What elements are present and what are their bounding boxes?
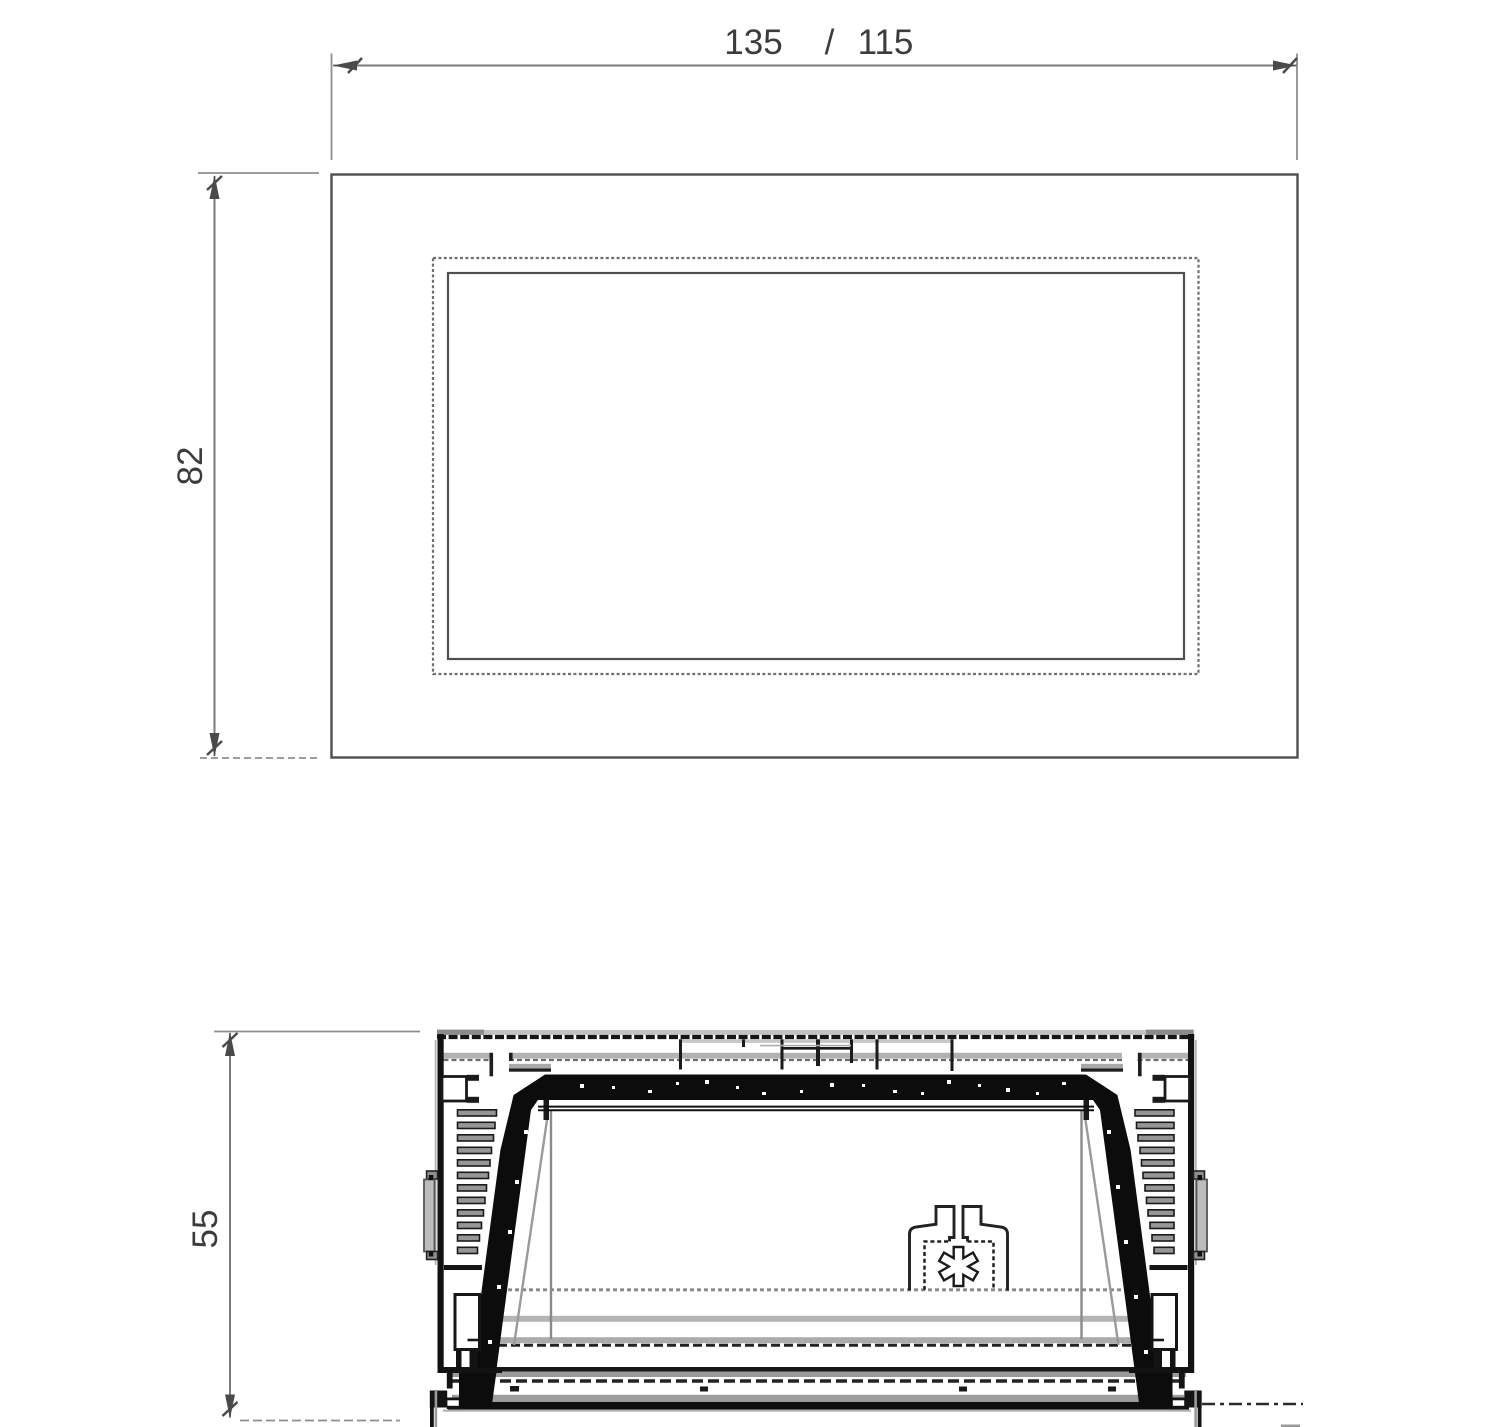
- svg-text:/: /: [825, 23, 835, 62]
- svg-text:115: 115: [858, 23, 914, 62]
- svg-text:55: 55: [186, 1210, 225, 1249]
- svg-text:135: 135: [724, 23, 782, 62]
- svg-text:82: 82: [171, 447, 210, 486]
